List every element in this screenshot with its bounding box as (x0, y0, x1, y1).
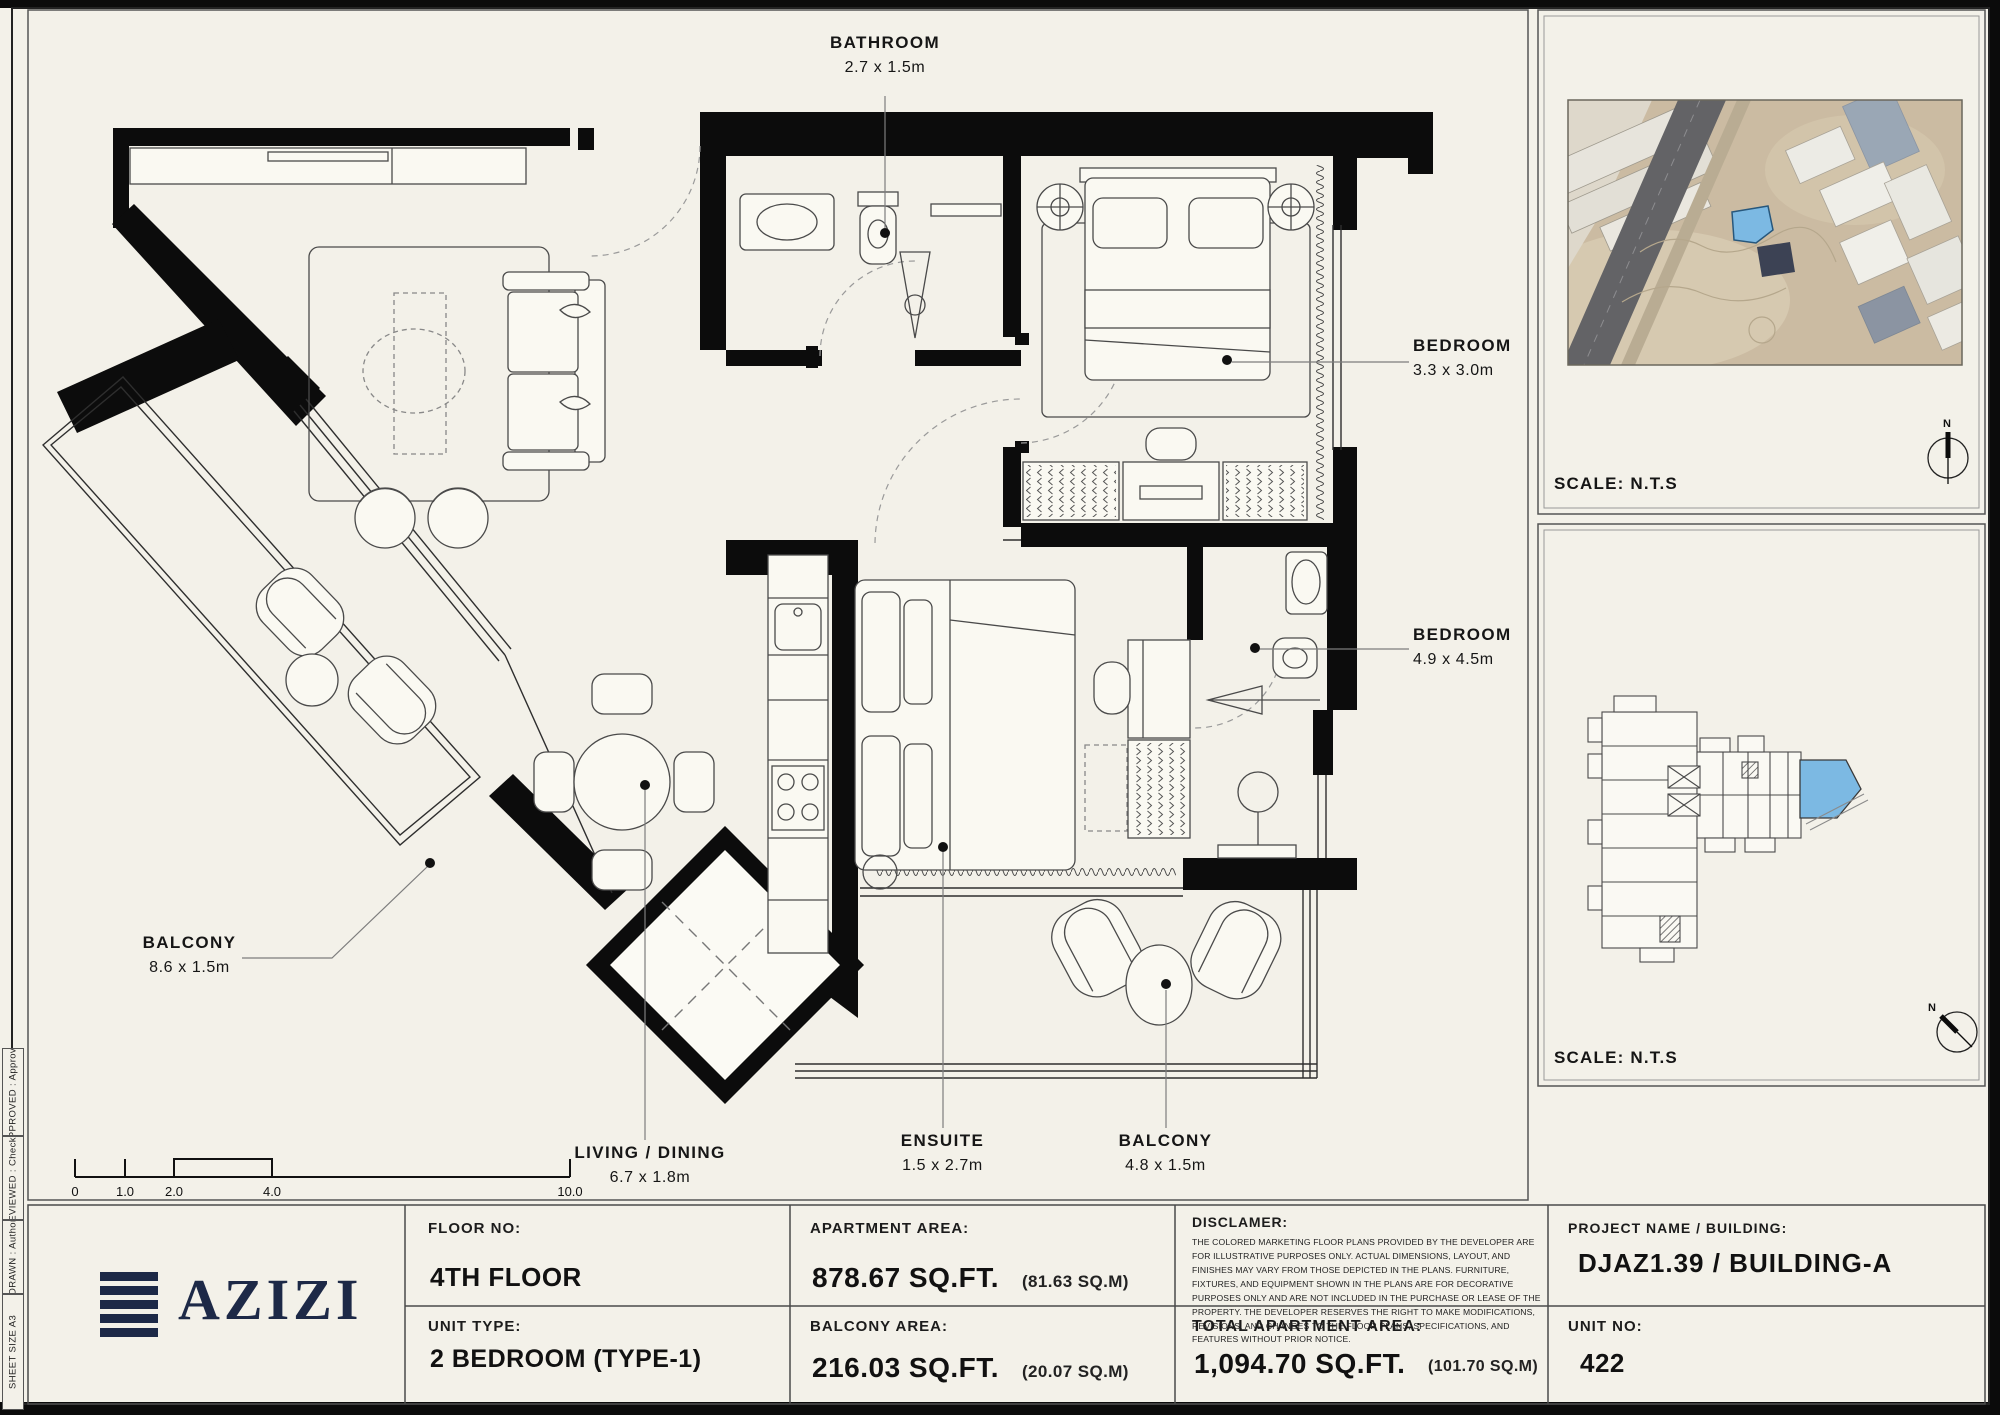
disclaimer-label: DISCLAMER: (1192, 1214, 1288, 1230)
total-area-metric: (101.70 SQ.M) (1428, 1358, 1538, 1376)
edge-sheet-size: SHEET SIZE A3 (2, 1294, 24, 1410)
scale-tick: 0 (71, 1184, 78, 1199)
apartment-area-metric: (81.63 SQ.M) (1022, 1272, 1129, 1292)
north-arrow-top (1928, 432, 1968, 484)
unit-no-label: UNIT NO: (1568, 1318, 1643, 1335)
room-dims: 2.7 x 1.5m (795, 56, 975, 81)
room-dims: 3.3 x 3.0m (1413, 359, 1583, 384)
north-arrow-bottom (1937, 1012, 1977, 1052)
unit-type-label: UNIT TYPE: (428, 1318, 521, 1335)
label-bedroom-top: BEDROOM 3.3 x 3.0m (1413, 333, 1583, 384)
scale-tick: 2.0 (165, 1184, 183, 1199)
edge-approved: APPROVED : Approver (2, 1048, 24, 1136)
floor-no-value: 4TH FLOOR (430, 1262, 582, 1293)
room-name: BALCONY (1073, 1128, 1258, 1154)
map-scale-note: SCALE: N.T.S (1554, 474, 1678, 494)
edge-drawn: DRAWN : Author (2, 1220, 24, 1294)
total-area-label: TOTAL APARTMENT AREA: (1192, 1318, 1422, 1336)
balcony-area-metric: (20.07 SQ.M) (1022, 1362, 1129, 1382)
room-dims: 4.9 x 4.5m (1413, 648, 1583, 673)
room-dims: 4.8 x 1.5m (1073, 1154, 1258, 1179)
room-dims: 1.5 x 2.7m (850, 1154, 1035, 1179)
north-letter-bottom: N (1928, 1002, 1936, 1014)
apartment-area-value: 878.67 SQ.FT. (812, 1262, 999, 1294)
scale-tick: 10.0 (557, 1184, 582, 1199)
unit-type-value: 2 BEDROOM (TYPE-1) (430, 1345, 702, 1374)
project-label: PROJECT NAME / BUILDING: (1568, 1220, 1787, 1236)
room-dims: 8.6 x 1.5m (117, 956, 262, 981)
key-scale-note: SCALE: N.T.S (1554, 1048, 1678, 1068)
floorplan-sheet: BATHROOM 2.7 x 1.5m BEDROOM 3.3 x 3.0m B… (0, 0, 2000, 1415)
azizi-logo: AZIZI (178, 1266, 362, 1333)
label-balcony-bottom: BALCONY 4.8 x 1.5m (1073, 1128, 1258, 1179)
label-bedroom-main: BEDROOM 4.9 x 4.5m (1413, 622, 1583, 673)
scale-bar (75, 1159, 570, 1177)
project-value: DJAZ1.39 / BUILDING-A (1578, 1248, 1892, 1279)
floor-no-label: FLOOR NO: (428, 1220, 521, 1237)
room-name: BEDROOM (1413, 622, 1583, 648)
label-balcony-left: BALCONY 8.6 x 1.5m (117, 930, 262, 981)
unit-no-value: 422 (1580, 1348, 1625, 1379)
satellite-map (1530, 85, 1999, 376)
azizi-logo-bars (100, 1272, 158, 1337)
north-letter-top: N (1943, 418, 1951, 430)
scale-tick: 1.0 (116, 1184, 134, 1199)
label-bathroom: BATHROOM 2.7 x 1.5m (795, 30, 975, 81)
highlighted-unit (1800, 760, 1861, 818)
key-plan (1588, 696, 1868, 962)
room-name: BATHROOM (795, 30, 975, 56)
balcony-area-value: 216.03 SQ.FT. (812, 1352, 999, 1384)
edge-reviewed: REVIEWED : Checker (2, 1136, 24, 1220)
room-name: ENSUITE (850, 1128, 1035, 1154)
room-name: BEDROOM (1413, 333, 1583, 359)
apartment-area-label: APARTMENT AREA: (810, 1220, 969, 1237)
total-area-value: 1,094.70 SQ.FT. (1194, 1348, 1405, 1380)
plan-drawing (0, 0, 2000, 1415)
scale-tick: 4.0 (263, 1184, 281, 1199)
room-name: BALCONY (117, 930, 262, 956)
balcony-area-label: BALCONY AREA: (810, 1318, 948, 1335)
label-ensuite: ENSUITE 1.5 x 2.7m (850, 1128, 1035, 1179)
room-name: LIVING / DINING (550, 1140, 750, 1166)
